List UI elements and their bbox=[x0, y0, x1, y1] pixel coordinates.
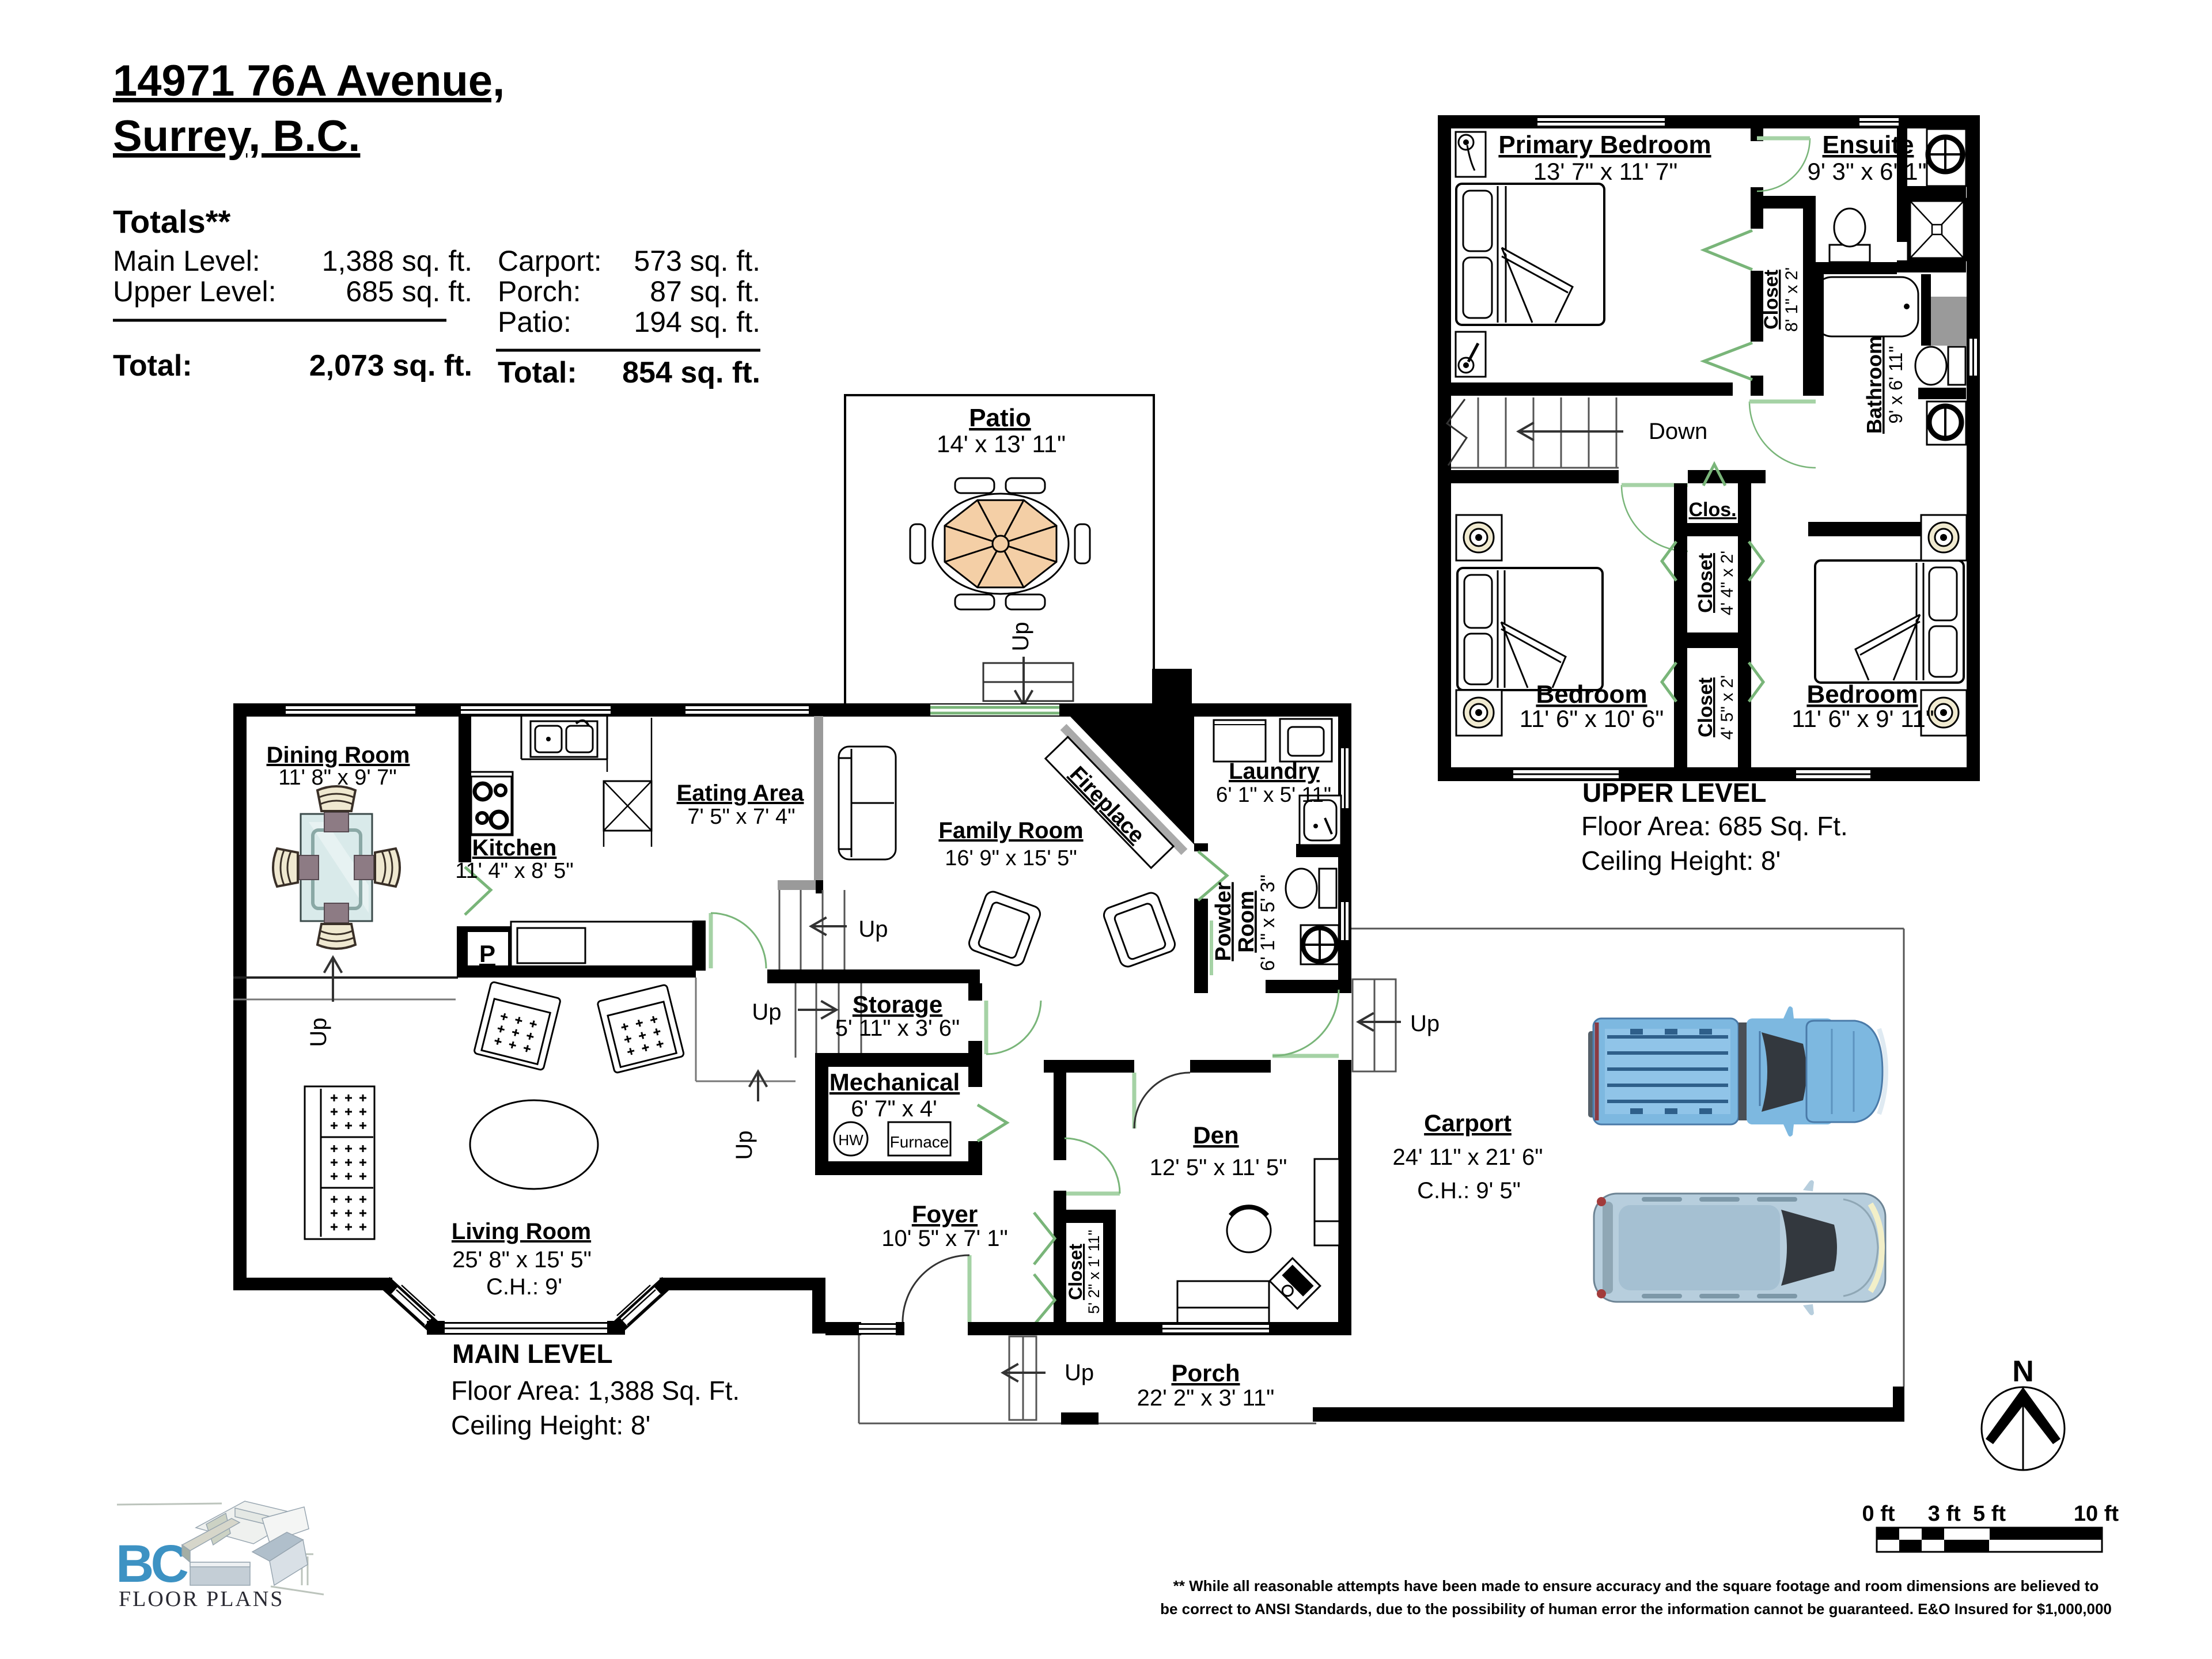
svg-text:Storage: Storage bbox=[853, 991, 942, 1018]
svg-text:Room: Room bbox=[1234, 891, 1259, 953]
svg-text:Surrey, B.C.: Surrey, B.C. bbox=[113, 112, 360, 161]
svg-text:Upper Level:: Upper Level: bbox=[113, 275, 276, 308]
svg-text:25' 8" x 15' 5": 25' 8" x 15' 5" bbox=[452, 1247, 592, 1272]
svg-text:Bedroom: Bedroom bbox=[1806, 680, 1918, 709]
svg-text:Dining Room: Dining Room bbox=[267, 743, 410, 768]
svg-text:Furnace: Furnace bbox=[890, 1133, 949, 1151]
svg-text:Carport: Carport bbox=[1424, 1109, 1512, 1137]
svg-text:Up: Up bbox=[1008, 622, 1033, 651]
svg-text:Closet: Closet bbox=[1695, 553, 1717, 613]
svg-text:Porch:: Porch: bbox=[498, 275, 581, 308]
svg-text:Total:: Total: bbox=[498, 356, 577, 389]
svg-text:24' 11" x 21' 6": 24' 11" x 21' 6" bbox=[1393, 1145, 1543, 1170]
svg-text:Floor Area: 1,388 Sq. Ft.: Floor Area: 1,388 Sq. Ft. bbox=[451, 1376, 740, 1406]
svg-text:Up: Up bbox=[1410, 1011, 1440, 1036]
svg-text:Family Room: Family Room bbox=[938, 818, 1083, 843]
svg-text:Floor Area: 685 Sq. Ft.: Floor Area: 685 Sq. Ft. bbox=[1581, 811, 1848, 841]
svg-text:10 ft: 10 ft bbox=[2074, 1502, 2119, 1526]
svg-text:Up: Up bbox=[732, 1130, 757, 1160]
svg-text:1,388 sq. ft.: 1,388 sq. ft. bbox=[322, 245, 472, 277]
svg-text:be correct to ANSI Standards,: be correct to ANSI Standards, due to the… bbox=[1160, 1600, 2112, 1618]
svg-text:22' 2" x 3' 11": 22' 2" x 3' 11" bbox=[1137, 1385, 1275, 1411]
svg-text:16' 9" x 15' 5": 16' 9" x 15' 5" bbox=[945, 846, 1077, 870]
svg-text:Up: Up bbox=[752, 999, 781, 1025]
svg-text:Mechanical: Mechanical bbox=[829, 1069, 960, 1096]
svg-text:C.H.: 9' 5": C.H.: 9' 5" bbox=[1417, 1178, 1521, 1203]
svg-text:Porch: Porch bbox=[1171, 1359, 1240, 1387]
svg-text:Powder: Powder bbox=[1211, 882, 1236, 961]
svg-text:Total:: Total: bbox=[113, 349, 192, 382]
svg-text:4' 5" x 2': 4' 5" x 2' bbox=[1718, 675, 1737, 740]
svg-text:Closet: Closet bbox=[1065, 1244, 1086, 1300]
svg-text:P: P bbox=[479, 940, 495, 967]
svg-text:2,073 sq. ft.: 2,073 sq. ft. bbox=[309, 349, 472, 382]
svg-text:C.H.: 9': C.H.: 9' bbox=[486, 1274, 562, 1300]
svg-text:Main Level:: Main Level: bbox=[113, 245, 260, 277]
svg-text:Carport:: Carport: bbox=[498, 245, 602, 277]
svg-text:Den: Den bbox=[1193, 1122, 1238, 1149]
svg-text:** While all reasonable attemp: ** While all reasonable attempts have be… bbox=[1173, 1577, 2099, 1594]
svg-text:FLOOR PLANS: FLOOR PLANS bbox=[119, 1587, 284, 1611]
svg-text:14971 76A Avenue,: 14971 76A Avenue, bbox=[113, 56, 505, 105]
svg-text:6' 1" x 5' 3": 6' 1" x 5' 3" bbox=[1257, 874, 1279, 971]
svg-text:Totals**: Totals** bbox=[113, 203, 231, 240]
svg-text:13' 7" x 11' 7": 13' 7" x 11' 7" bbox=[1533, 158, 1678, 185]
svg-text:194 sq. ft.: 194 sq. ft. bbox=[634, 306, 760, 338]
svg-text:6' 1" x 5' 11": 6' 1" x 5' 11" bbox=[1216, 783, 1331, 806]
svg-text:8' 1" x 2': 8' 1" x 2' bbox=[1782, 267, 1801, 332]
svg-text:MAIN LEVEL: MAIN LEVEL bbox=[452, 1339, 613, 1369]
svg-text:Ceiling Height: 8': Ceiling Height: 8' bbox=[1581, 846, 1781, 876]
svg-text:N: N bbox=[2012, 1355, 2034, 1388]
svg-text:HW: HW bbox=[838, 1131, 863, 1149]
svg-text:11' 6" x 9' 11": 11' 6" x 9' 11" bbox=[1791, 705, 1934, 732]
svg-text:Ensuite: Ensuite bbox=[1823, 131, 1914, 159]
svg-text:Clos.: Clos. bbox=[1688, 499, 1736, 521]
svg-text:Laundry: Laundry bbox=[1229, 759, 1320, 784]
svg-text:685 sq. ft.: 685 sq. ft. bbox=[346, 275, 472, 308]
svg-text:10' 5" x 7' 1": 10' 5" x 7' 1" bbox=[881, 1226, 1007, 1251]
svg-text:5 ft: 5 ft bbox=[1973, 1502, 2006, 1526]
svg-text:Down: Down bbox=[1649, 419, 1707, 444]
svg-text:Living Room: Living Room bbox=[452, 1219, 591, 1244]
svg-text:Kitchen: Kitchen bbox=[472, 835, 557, 861]
svg-text:UPPER LEVEL: UPPER LEVEL bbox=[1582, 778, 1767, 808]
svg-text:3 ft: 3 ft bbox=[1928, 1502, 1961, 1526]
svg-text:12' 5" x 11' 5": 12' 5" x 11' 5" bbox=[1150, 1155, 1287, 1180]
svg-text:Bathroom: Bathroom bbox=[1862, 336, 1886, 434]
svg-text:Closet: Closet bbox=[1695, 677, 1717, 737]
svg-text:5' 11" x 3' 6": 5' 11" x 3' 6" bbox=[835, 1016, 960, 1041]
svg-text:Patio:: Patio: bbox=[498, 306, 571, 338]
svg-text:Patio: Patio bbox=[969, 404, 1031, 432]
svg-text:11' 4" x 8' 5": 11' 4" x 8' 5" bbox=[455, 859, 574, 883]
svg-text:9' 3" x 6' 1": 9' 3" x 6' 1" bbox=[1808, 158, 1927, 185]
svg-text:854 sq. ft.: 854 sq. ft. bbox=[622, 356, 760, 389]
svg-text:11' 6" x 10' 6": 11' 6" x 10' 6" bbox=[1520, 705, 1664, 732]
svg-text:9' x 6' 11": 9' x 6' 11" bbox=[1885, 346, 1906, 423]
svg-text:7' 5" x 7' 4": 7' 5" x 7' 4" bbox=[687, 805, 795, 829]
svg-text:573 sq. ft.: 573 sq. ft. bbox=[634, 245, 760, 277]
svg-text:Ceiling Height: 8': Ceiling Height: 8' bbox=[451, 1410, 650, 1440]
svg-text:Foyer: Foyer bbox=[912, 1200, 978, 1228]
svg-text:Closet: Closet bbox=[1760, 270, 1782, 329]
svg-text:Eating Area: Eating Area bbox=[677, 781, 805, 806]
svg-text:6' 7" x 4': 6' 7" x 4' bbox=[851, 1096, 937, 1122]
svg-text:Bedroom: Bedroom bbox=[1536, 680, 1647, 709]
svg-text:14' x 13' 11": 14' x 13' 11" bbox=[937, 430, 1066, 457]
svg-text:87 sq. ft.: 87 sq. ft. bbox=[650, 275, 760, 308]
svg-text:5' 2" x 1' 11": 5' 2" x 1' 11" bbox=[1085, 1230, 1103, 1314]
svg-text:BC: BC bbox=[116, 1535, 187, 1593]
svg-text:Primary Bedroom: Primary Bedroom bbox=[1498, 131, 1711, 159]
svg-text:Up: Up bbox=[1065, 1360, 1094, 1385]
svg-text:Up: Up bbox=[306, 1017, 331, 1047]
svg-text:Up: Up bbox=[858, 916, 888, 942]
svg-text:0 ft: 0 ft bbox=[1862, 1502, 1895, 1526]
svg-text:4' 4" x 2': 4' 4" x 2' bbox=[1718, 551, 1737, 615]
